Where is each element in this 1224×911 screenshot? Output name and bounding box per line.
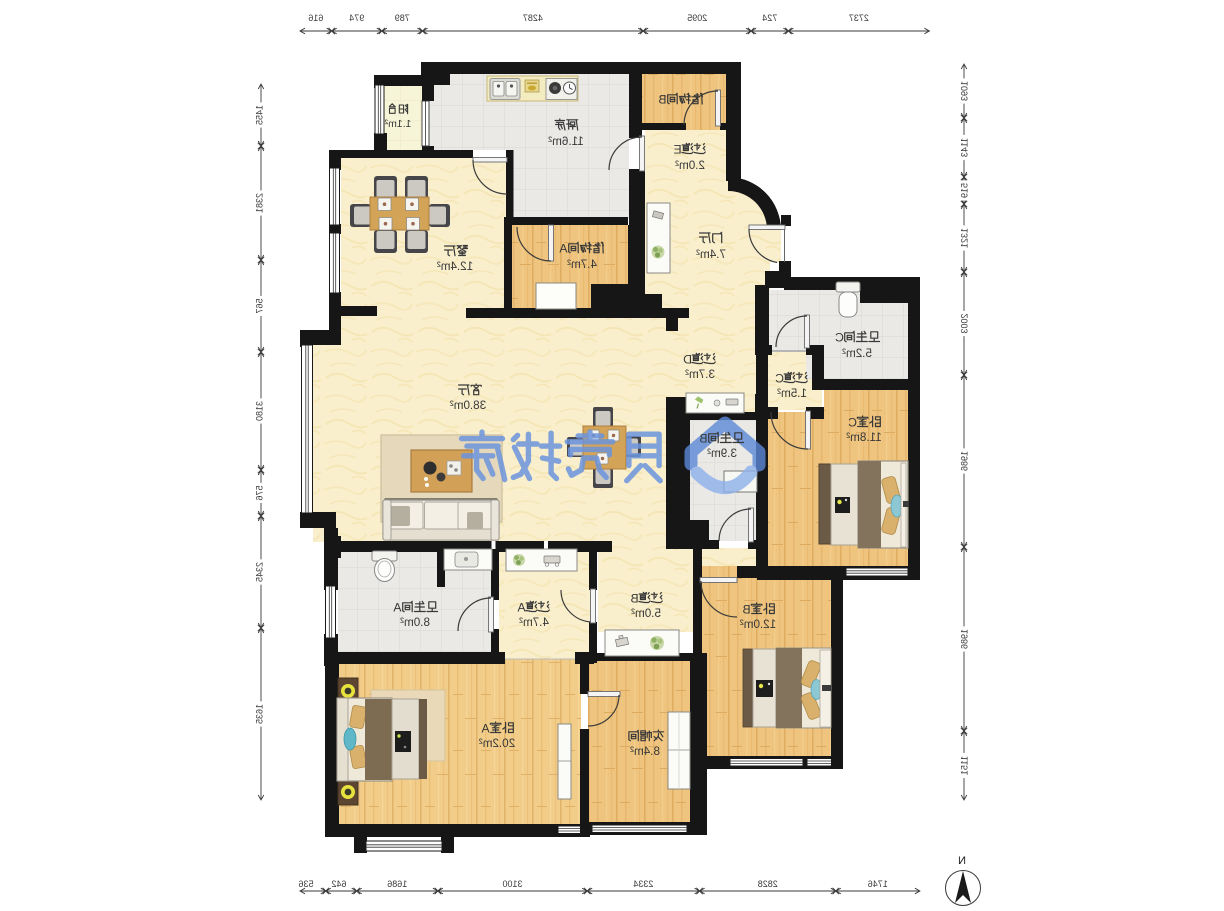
- svg-text:D: D: [683, 353, 692, 367]
- svg-text:A: A: [558, 242, 567, 256]
- svg-text:1093: 1093: [960, 81, 970, 101]
- svg-text:3180: 3180: [255, 401, 265, 421]
- svg-text:4287: 4287: [523, 13, 543, 23]
- svg-text:11.6m²: 11.6m²: [548, 135, 584, 148]
- svg-text:2381: 2381: [255, 193, 265, 213]
- svg-text:B: B: [631, 592, 639, 606]
- svg-text:2334: 2334: [633, 879, 653, 889]
- svg-text:1635: 1635: [255, 704, 265, 724]
- svg-text:A: A: [481, 722, 490, 736]
- svg-text:C: C: [848, 416, 857, 430]
- svg-text:2003: 2003: [960, 313, 970, 333]
- svg-text:1.1m²: 1.1m²: [384, 118, 411, 130]
- svg-text:2345: 2345: [255, 562, 265, 582]
- svg-text:3100: 3100: [502, 879, 522, 889]
- svg-text:4.7m²: 4.7m²: [567, 258, 597, 271]
- svg-text:1746: 1746: [868, 879, 888, 889]
- svg-text:12.0m²: 12.0m²: [740, 618, 776, 631]
- svg-text:2095: 2095: [687, 13, 707, 23]
- svg-text:C: C: [775, 372, 784, 386]
- svg-text:519: 519: [960, 183, 970, 198]
- svg-text:12.4m²: 12.4m²: [437, 260, 473, 273]
- svg-text:642: 642: [331, 879, 346, 889]
- svg-text:11.8m²: 11.8m²: [846, 431, 882, 444]
- svg-text:567: 567: [255, 298, 265, 313]
- svg-text:1321: 1321: [960, 228, 970, 248]
- svg-text:1986: 1986: [960, 451, 970, 471]
- svg-text:5.0m²: 5.0m²: [631, 607, 661, 620]
- svg-text:3.9m²: 3.9m²: [707, 447, 737, 460]
- svg-text:616: 616: [308, 13, 323, 23]
- svg-text:1986: 1986: [960, 629, 970, 649]
- svg-text:A: A: [517, 601, 526, 615]
- svg-text:4.7m²: 4.7m²: [519, 616, 549, 629]
- svg-text:1686: 1686: [387, 879, 407, 889]
- svg-text:8.0m²: 8.0m²: [400, 616, 430, 629]
- svg-text:A: A: [392, 601, 401, 615]
- svg-text:8.4m²: 8.4m²: [630, 745, 660, 758]
- svg-text:724: 724: [762, 13, 777, 23]
- svg-text:20.2m²: 20.2m²: [479, 737, 515, 750]
- svg-text:B: B: [699, 432, 707, 446]
- svg-text:789: 789: [395, 13, 410, 23]
- svg-text:C: C: [835, 331, 844, 345]
- svg-text:B: B: [743, 603, 751, 617]
- svg-text:E: E: [674, 143, 682, 157]
- svg-text:B: B: [658, 93, 666, 107]
- svg-text:2828: 2828: [758, 879, 778, 889]
- svg-text:2737: 2737: [849, 13, 869, 23]
- svg-text:7.4m²: 7.4m²: [696, 248, 726, 261]
- svg-text:N: N: [958, 855, 966, 867]
- svg-text:38.0m²: 38.0m²: [450, 399, 486, 412]
- svg-text:3.7m²: 3.7m²: [685, 368, 715, 381]
- svg-text:1455: 1455: [255, 105, 265, 125]
- svg-text:576: 576: [255, 485, 265, 500]
- svg-text:1.5m²: 1.5m²: [777, 387, 807, 400]
- svg-text:974: 974: [349, 13, 364, 23]
- svg-text:1151: 1151: [960, 756, 970, 775]
- svg-text:536: 536: [298, 879, 313, 889]
- svg-text:2.0m²: 2.0m²: [675, 159, 705, 172]
- svg-text:5.2m²: 5.2m²: [842, 347, 872, 360]
- svg-text:1143: 1143: [960, 138, 970, 157]
